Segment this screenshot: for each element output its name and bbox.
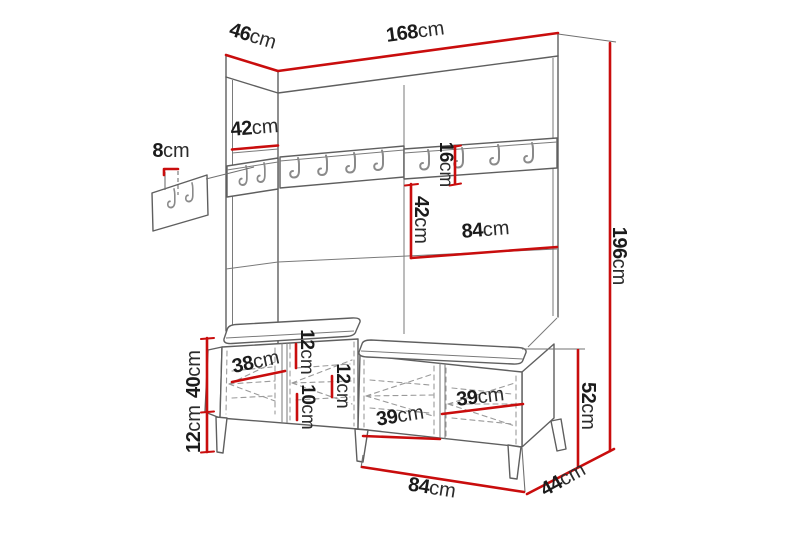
dimension-unit: cm bbox=[410, 217, 432, 244]
dim-line-46 bbox=[226, 55, 278, 71]
bench-leg bbox=[216, 417, 227, 453]
dimension-label-12cm-top: 12cm bbox=[296, 329, 317, 374]
dim-line-8 bbox=[164, 169, 178, 175]
bench-top-rear-right-edge bbox=[528, 318, 557, 347]
dimension-unit: cm bbox=[183, 405, 205, 432]
bench-right-side bbox=[522, 344, 554, 447]
extension-line-84-right bbox=[522, 448, 525, 492]
dimension-value: 12 bbox=[332, 363, 353, 383]
dimension-value: 10 bbox=[297, 384, 318, 404]
side-mid-shelf bbox=[226, 262, 278, 269]
dimension-value: 40 bbox=[183, 376, 205, 398]
dimension-label-42cm-mid: 42cm bbox=[410, 196, 432, 244]
dimension-label-84cm-mid: 84cm bbox=[461, 217, 511, 243]
dimension-diagram: 46cm 168cm 42cm 8cm 16cm 42cm 84cm 196cm… bbox=[0, 0, 800, 533]
dimension-label-16cm: 16cm bbox=[435, 142, 456, 187]
dimension-label-168cm: 168cm bbox=[385, 17, 446, 46]
dimension-value: 12 bbox=[183, 431, 205, 453]
dimension-label-84cm-bottom: 84cm bbox=[407, 473, 458, 502]
dimension-label-8cm: 8cm bbox=[152, 140, 189, 162]
dimension-unit: cm bbox=[247, 25, 279, 54]
dimension-value: 42 bbox=[410, 196, 432, 218]
dimension-value: 12 bbox=[296, 329, 317, 349]
diagram-canvas: 46cm 168cm 42cm 8cm 16cm 42cm 84cm 196cm… bbox=[0, 0, 800, 533]
dim-line-42-side bbox=[232, 146, 278, 150]
dimension-unit: cm bbox=[183, 350, 205, 377]
dimension-unit: cm bbox=[396, 401, 426, 427]
dimension-unit: cm bbox=[577, 403, 599, 430]
dimension-unit: cm bbox=[476, 383, 505, 408]
dimension-value: 52 bbox=[577, 382, 599, 404]
dimension-value: 196 bbox=[608, 227, 630, 259]
dimension-value: 42 bbox=[230, 117, 253, 141]
bench-leg bbox=[355, 429, 368, 462]
bench bbox=[205, 318, 566, 479]
dimension-label-12cm-leg: 12cm bbox=[183, 405, 205, 453]
dimension-unit: cm bbox=[251, 115, 279, 139]
dimension-label-196cm: 196cm bbox=[608, 227, 630, 286]
dimension-label-46cm: 46cm bbox=[227, 19, 279, 54]
dimension-label-42cm-side: 42cm bbox=[230, 115, 280, 141]
dimension-value: 8 bbox=[152, 140, 163, 162]
dimension-label-12cm-right: 12cm bbox=[332, 363, 353, 408]
dimension-value: 39 bbox=[455, 386, 479, 410]
dimension-unit: cm bbox=[297, 404, 318, 429]
side-hook-rail bbox=[227, 158, 278, 197]
dimension-unit: cm bbox=[163, 140, 190, 162]
bench-leg bbox=[508, 445, 521, 479]
dimension-unit: cm bbox=[296, 349, 317, 374]
dim-line-84-mid bbox=[411, 247, 557, 258]
dimension-label-44cm: 44cm bbox=[537, 459, 590, 501]
dimension-unit: cm bbox=[435, 162, 456, 187]
dimension-value: 16 bbox=[435, 142, 456, 162]
dimension-unit: cm bbox=[608, 259, 630, 286]
dimension-unit: cm bbox=[332, 383, 353, 408]
dimension-unit: cm bbox=[482, 217, 510, 241]
dimension-label-40cm: 40cm bbox=[183, 350, 205, 398]
extension-line-top-right bbox=[558, 34, 616, 42]
dimension-value: 168 bbox=[385, 21, 420, 47]
top-board-bottom-edge bbox=[226, 56, 558, 93]
dimension-unit: cm bbox=[428, 477, 458, 503]
dimension-label-52cm: 52cm bbox=[577, 382, 599, 430]
inset-panel bbox=[152, 175, 208, 231]
bench-leg bbox=[551, 419, 566, 451]
dimension-unit: cm bbox=[416, 17, 445, 42]
dim-tick-42-mid bbox=[405, 184, 418, 186]
dimension-label-10cm: 10cm bbox=[297, 384, 318, 429]
